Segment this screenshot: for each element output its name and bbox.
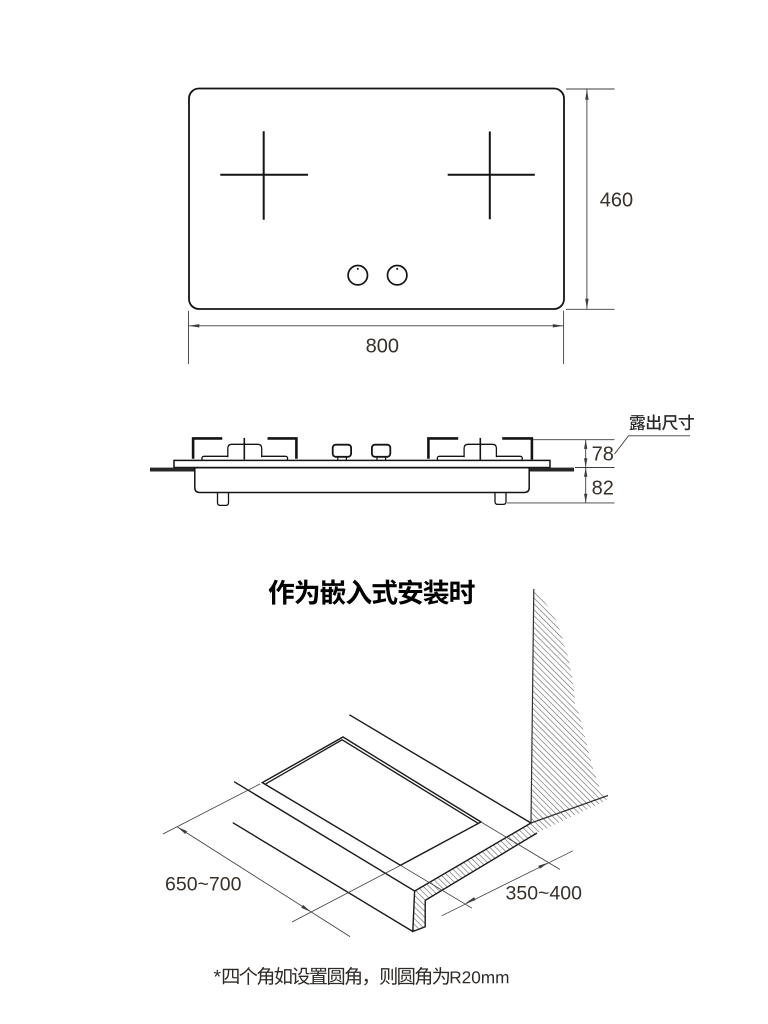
- svg-text:650~700: 650~700: [165, 874, 242, 896]
- svg-text:800: 800: [366, 336, 399, 358]
- svg-text:78: 78: [592, 443, 614, 465]
- svg-text:82: 82: [592, 478, 614, 500]
- svg-text:350~400: 350~400: [506, 883, 583, 905]
- svg-text:460: 460: [600, 190, 633, 212]
